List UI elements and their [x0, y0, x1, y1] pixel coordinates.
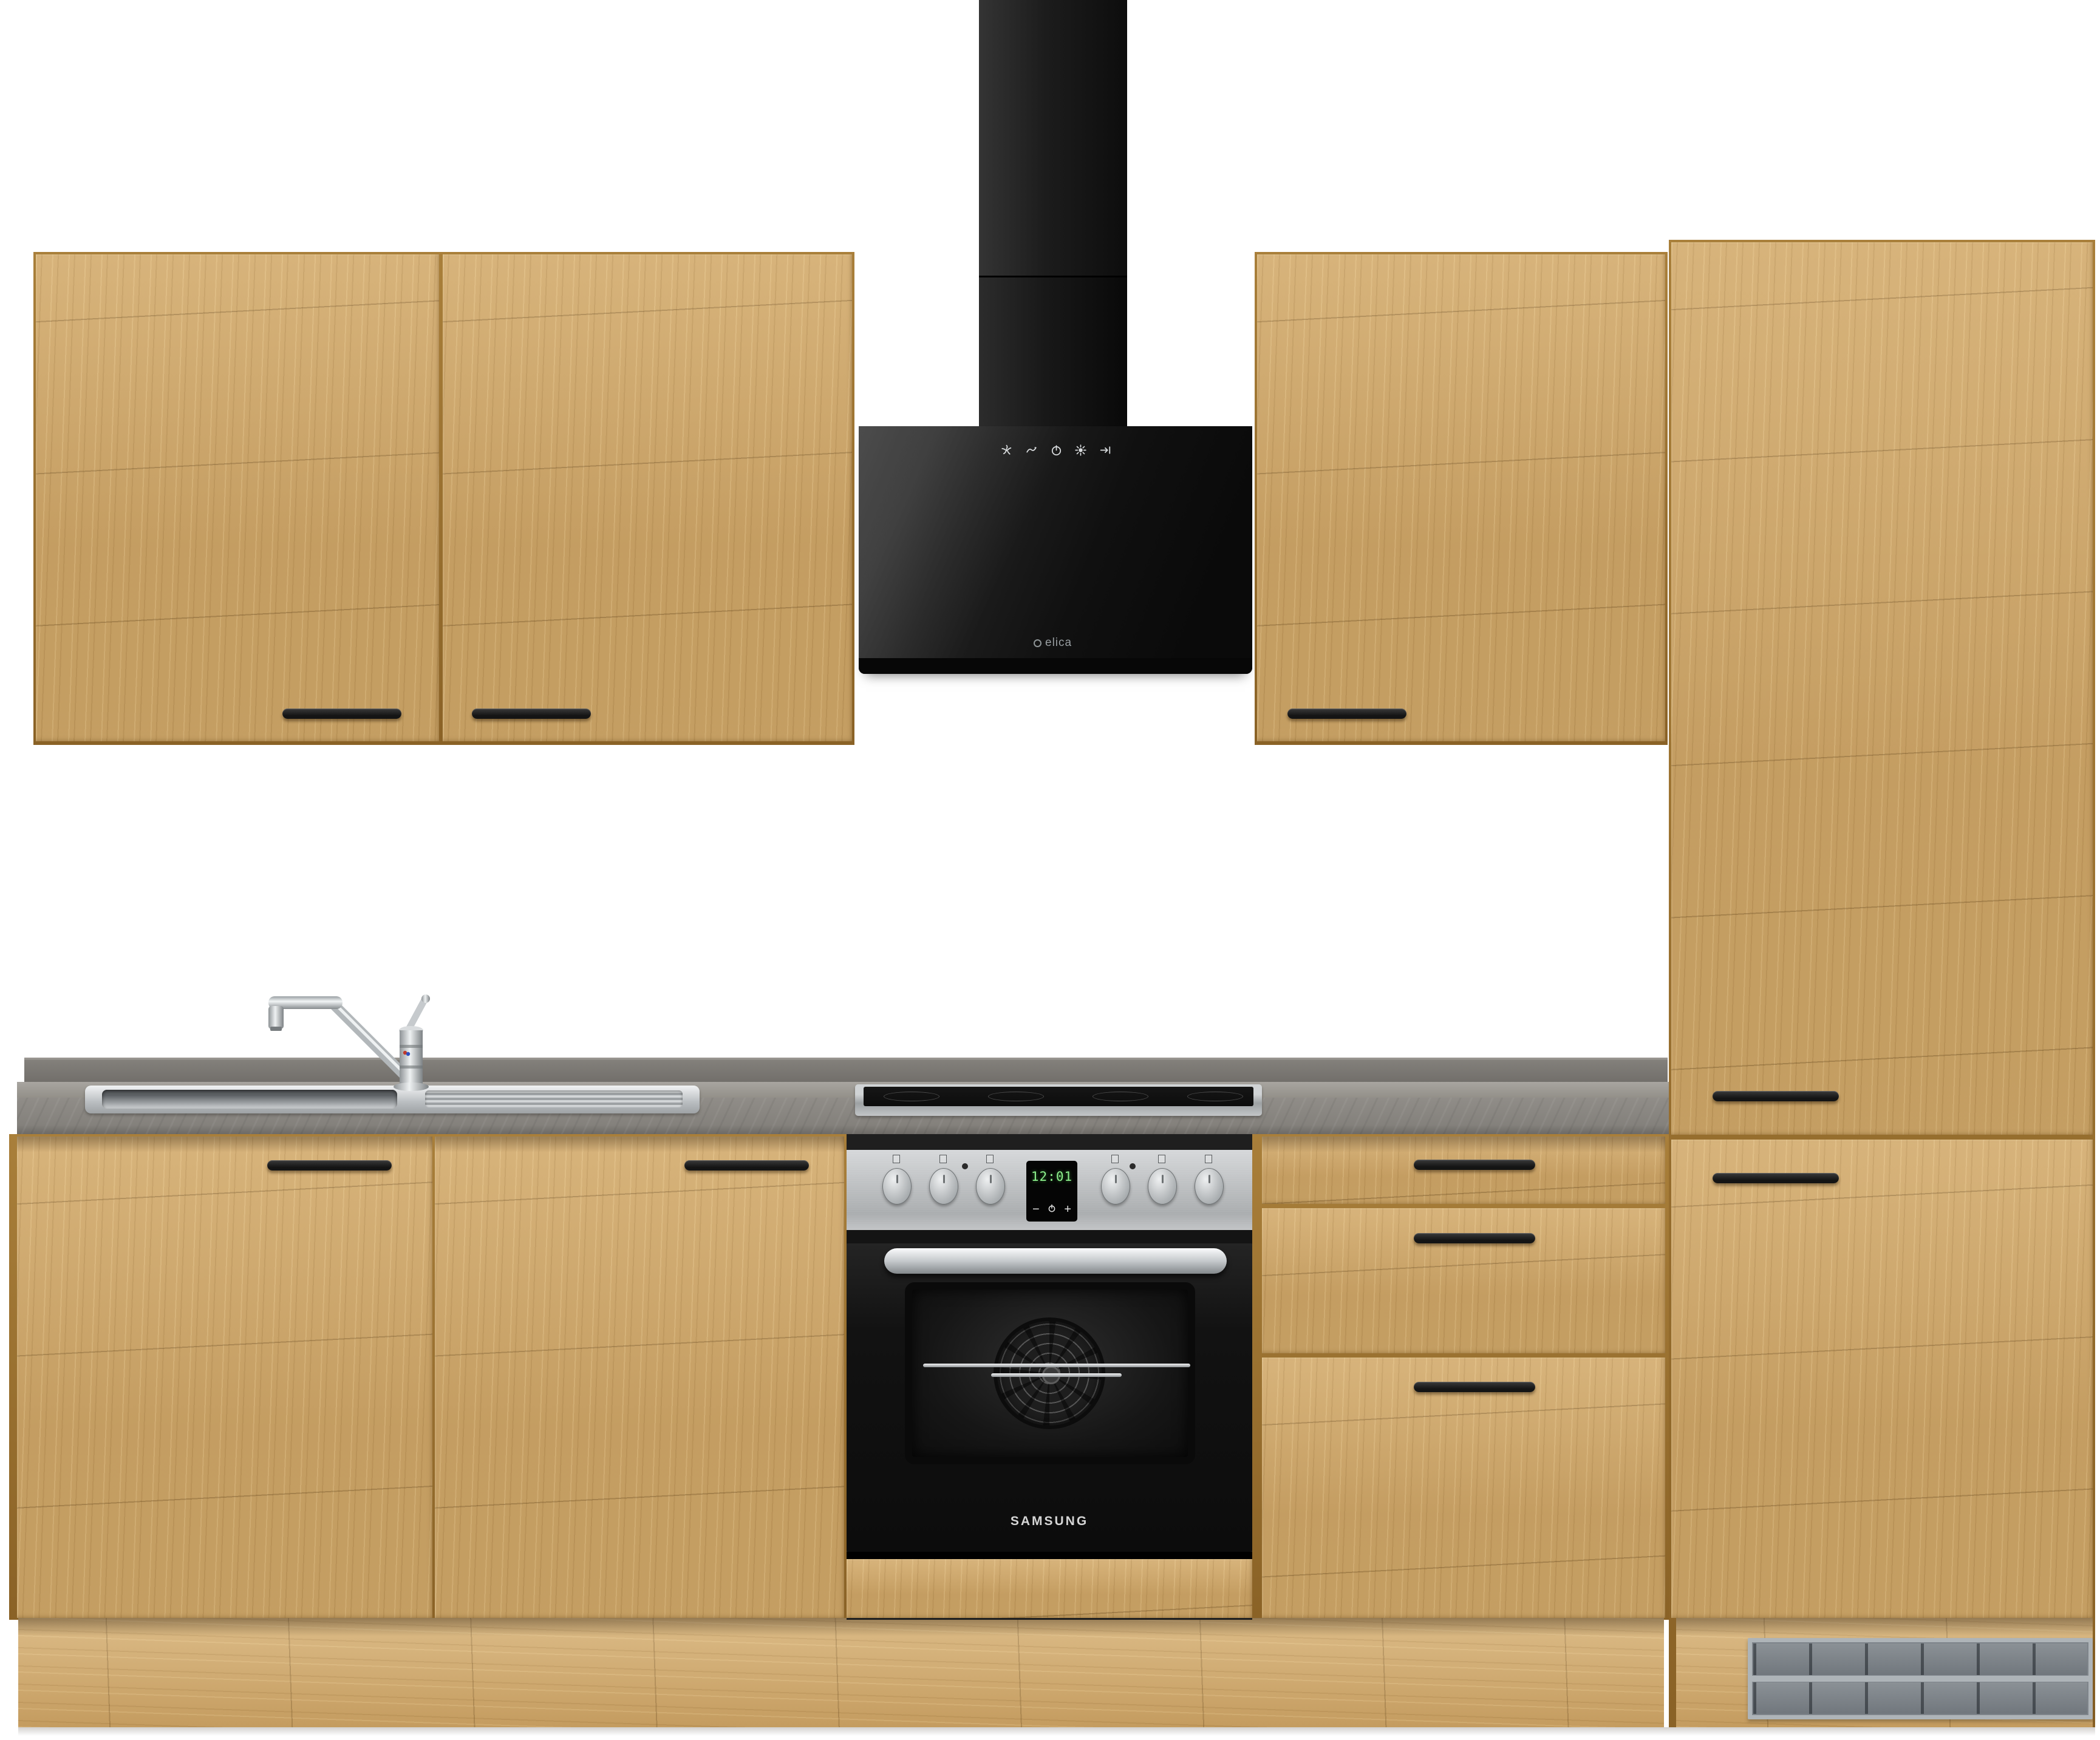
- oven-door-handle[interactable]: [884, 1248, 1227, 1274]
- oven-door-gap: [847, 1552, 1252, 1559]
- tall-door-upper-handle[interactable]: [1713, 1091, 1839, 1101]
- oven-display: 12:01 − +: [1026, 1161, 1077, 1222]
- oven-knob-4[interactable]: [1101, 1168, 1130, 1205]
- knob-mark-3: [986, 1155, 994, 1163]
- wall-door-right-handle[interactable]: [1287, 709, 1406, 719]
- drawer-1-handle[interactable]: [1414, 1160, 1535, 1170]
- oven-rack-handle: [991, 1373, 1122, 1377]
- cook-zone-4: [1187, 1092, 1243, 1101]
- oven-minus-button[interactable]: −: [1032, 1203, 1040, 1215]
- power-icon[interactable]: [1049, 443, 1063, 457]
- fan-icon[interactable]: [1000, 443, 1014, 457]
- cook-zone-1: [884, 1092, 939, 1101]
- hood-brand: elica: [1034, 636, 1072, 650]
- base-door-2: [435, 1137, 844, 1618]
- wall-door-left-1: [36, 254, 439, 741]
- vent-grille-slats-bottom: [1753, 1682, 2087, 1714]
- floor-shadow: [18, 1727, 2095, 1736]
- drawer-2-handle[interactable]: [1414, 1233, 1535, 1243]
- tall-door-lower: [1671, 1140, 2093, 1618]
- oven-knob-2[interactable]: [929, 1168, 958, 1205]
- elica-logo-icon: [1034, 639, 1041, 647]
- drawer-3-handle[interactable]: [1414, 1382, 1535, 1392]
- kitchen-product-photo: elica: [0, 0, 2100, 1740]
- tall-door-upper: [1671, 242, 2093, 1135]
- wall-door-left-2: [443, 254, 852, 741]
- hood-bottom-edge: [859, 658, 1252, 674]
- light-icon[interactable]: [1074, 443, 1088, 457]
- base-door-2-handle[interactable]: [684, 1160, 809, 1171]
- oven-knob-6[interactable]: [1195, 1168, 1224, 1205]
- base-door-1: [17, 1137, 432, 1618]
- knob-mark-1: [893, 1155, 900, 1163]
- cook-zone-3: [1093, 1092, 1148, 1101]
- drawer-2: [1262, 1208, 1665, 1353]
- vent-grille-slats-top: [1753, 1643, 2087, 1675]
- tall-door-lower-handle[interactable]: [1713, 1173, 1839, 1183]
- oven-plus-button[interactable]: +: [1064, 1203, 1071, 1215]
- sink-drainer: [425, 1090, 683, 1107]
- knob-mark-6: [1205, 1155, 1212, 1163]
- hood-control-panel: [1000, 441, 1113, 459]
- oven-knob-3[interactable]: [976, 1168, 1005, 1205]
- panel-dot-left: [962, 1163, 968, 1169]
- knob-mark-4: [1111, 1155, 1119, 1163]
- oven-knob-1[interactable]: [882, 1168, 912, 1205]
- drawer-1: [1262, 1137, 1665, 1204]
- oven-panel-bottom: [847, 1230, 1252, 1243]
- oven-power-icon[interactable]: [1047, 1203, 1057, 1215]
- vent-grille-rail: [1752, 1676, 2088, 1682]
- hood-chimney-upper: [979, 0, 1127, 276]
- timer-icon[interactable]: [1099, 443, 1113, 457]
- oven-lower-panel: [847, 1559, 1252, 1618]
- base-door-1-handle[interactable]: [267, 1160, 392, 1171]
- knob-mark-5: [1158, 1155, 1165, 1163]
- oven-clock: 12:01: [1031, 1169, 1072, 1184]
- faucet[interactable]: [261, 991, 443, 1092]
- oven-window: [905, 1282, 1195, 1464]
- wall-door-right: [1257, 254, 1665, 741]
- wall-door-left-1-handle[interactable]: [282, 709, 401, 719]
- hood-brand-text: elica: [1045, 636, 1072, 650]
- hood-chimney-lower: [979, 276, 1127, 430]
- wall-door-left-2-handle[interactable]: [472, 709, 591, 719]
- oven-brand: SAMSUNG: [847, 1514, 1252, 1529]
- knob-mark-2: [939, 1155, 947, 1163]
- swirl-icon[interactable]: [1024, 443, 1038, 457]
- oven-rack: [923, 1364, 1190, 1367]
- vent-grille: [1748, 1638, 2093, 1719]
- base-plinth: [18, 1618, 1664, 1727]
- oven-door: SAMSUNG: [847, 1243, 1252, 1552]
- sink-basin: [102, 1090, 397, 1109]
- oven: 12:01 − + SAMSUNG: [847, 1134, 1252, 1620]
- cook-zone-2: [988, 1092, 1044, 1101]
- panel-dot-right: [1130, 1163, 1136, 1169]
- drawer-3: [1262, 1358, 1665, 1618]
- oven-knob-5[interactable]: [1148, 1168, 1177, 1205]
